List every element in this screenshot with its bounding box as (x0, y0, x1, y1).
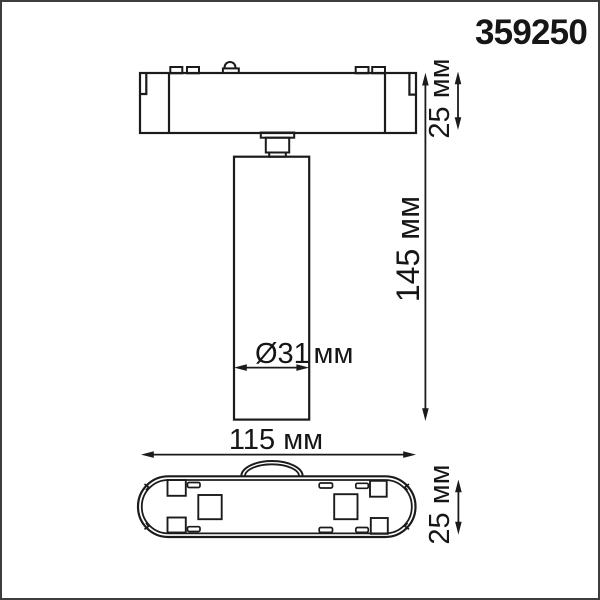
svg-text:115 мм: 115 мм (229, 424, 323, 456)
svg-text:Ø31: Ø31 (255, 338, 310, 370)
svg-text:25 мм: 25 мм (424, 58, 456, 138)
svg-text:25 мм: 25 мм (424, 464, 456, 544)
svg-text:359250: 359250 (475, 13, 587, 52)
svg-text:мм: мм (314, 338, 354, 370)
svg-text:145 мм: 145 мм (390, 196, 426, 302)
